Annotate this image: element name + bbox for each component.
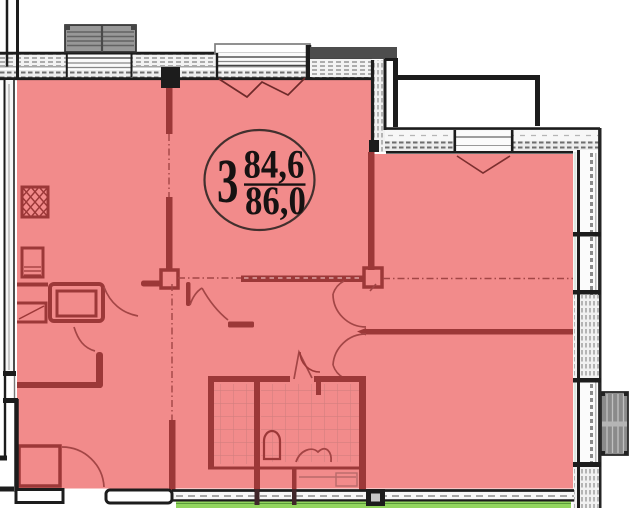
- svg-text:86,0: 86,0: [245, 180, 306, 224]
- svg-text:3: 3: [217, 146, 238, 216]
